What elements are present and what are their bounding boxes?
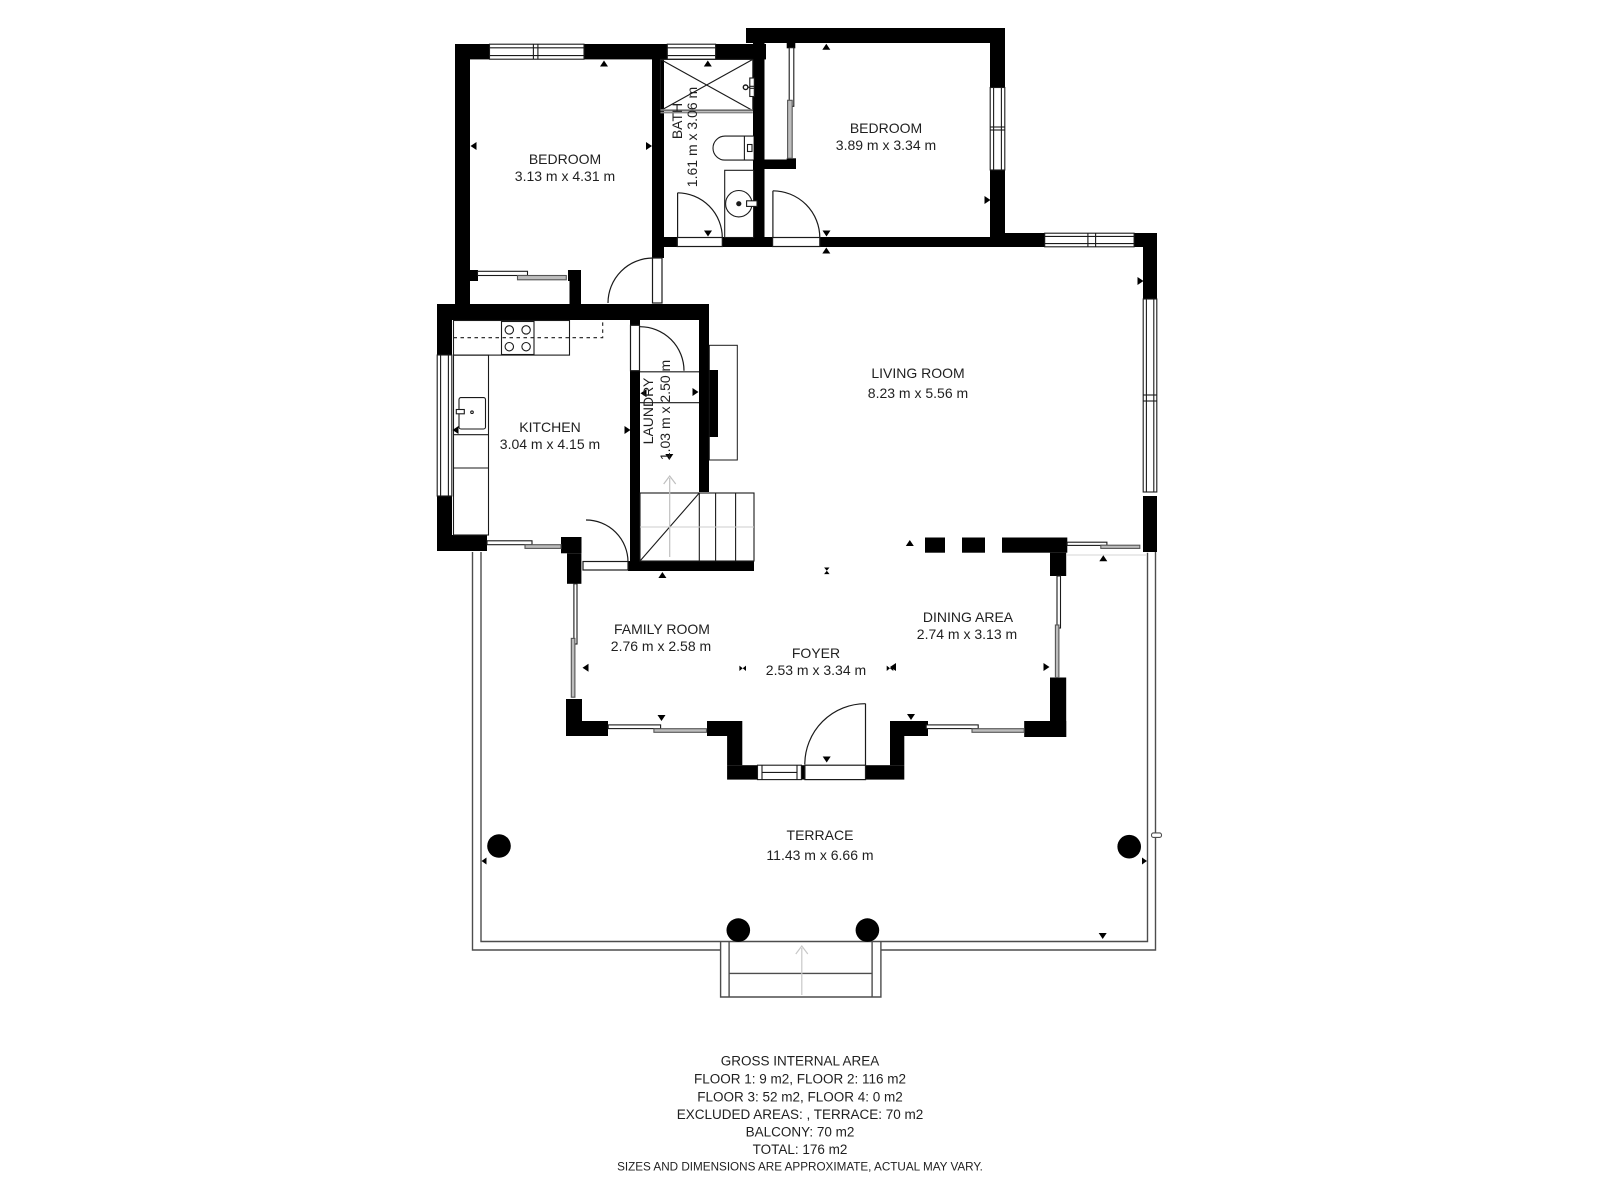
svg-text:EXCLUDED AREAS: , TERRACE: 70: EXCLUDED AREAS: , TERRACE: 70 m2 (677, 1107, 924, 1122)
svg-text:1.61 m x 3.06 m: 1.61 m x 3.06 m (684, 87, 700, 187)
svg-text:1.03 m x 2.50 m: 1.03 m x 2.50 m (657, 360, 673, 460)
svg-text:2.74 m x 3.13 m: 2.74 m x 3.13 m (917, 626, 1017, 642)
svg-text:LAUNDRY: LAUNDRY (640, 377, 656, 444)
svg-text:BEDROOM: BEDROOM (529, 151, 601, 167)
svg-text:8.23 m x 5.56 m: 8.23 m x 5.56 m (868, 385, 968, 401)
svg-text:BATH: BATH (669, 103, 685, 139)
svg-text:FLOOR 1: 9 m2, FLOOR 2: 116 m2: FLOOR 1: 9 m2, FLOOR 2: 116 m2 (694, 1072, 906, 1087)
svg-text:11.43 m x 6.66 m: 11.43 m x 6.66 m (766, 847, 873, 863)
svg-text:3.13 m x 4.31 m: 3.13 m x 4.31 m (515, 168, 615, 184)
svg-text:TERRACE: TERRACE (787, 827, 854, 843)
svg-text:FOYER: FOYER (792, 645, 840, 661)
svg-text:GROSS INTERNAL AREA: GROSS INTERNAL AREA (721, 1054, 880, 1069)
svg-text:KITCHEN: KITCHEN (519, 419, 580, 435)
svg-text:3.04 m x 4.15 m: 3.04 m x 4.15 m (500, 436, 600, 452)
svg-text:FAMILY ROOM: FAMILY ROOM (614, 621, 710, 637)
svg-text:3.89 m x 3.34 m: 3.89 m x 3.34 m (836, 137, 936, 153)
svg-text:DINING AREA: DINING AREA (923, 609, 1014, 625)
svg-text:2.76 m x 2.58 m: 2.76 m x 2.58 m (611, 638, 711, 654)
svg-text:BEDROOM: BEDROOM (850, 120, 922, 136)
svg-text:TOTAL: 176 m2: TOTAL: 176 m2 (753, 1142, 848, 1157)
svg-text:2.53 m x 3.34 m: 2.53 m x 3.34 m (766, 662, 866, 678)
svg-text:FLOOR 3: 52 m2, FLOOR 4: 0 m2: FLOOR 3: 52 m2, FLOOR 4: 0 m2 (697, 1090, 903, 1105)
svg-text:SIZES AND DIMENSIONS ARE APPRO: SIZES AND DIMENSIONS ARE APPROXIMATE, AC… (617, 1161, 983, 1174)
svg-text:BALCONY: 70 m2: BALCONY: 70 m2 (746, 1125, 855, 1140)
svg-text:LIVING ROOM: LIVING ROOM (871, 365, 964, 381)
